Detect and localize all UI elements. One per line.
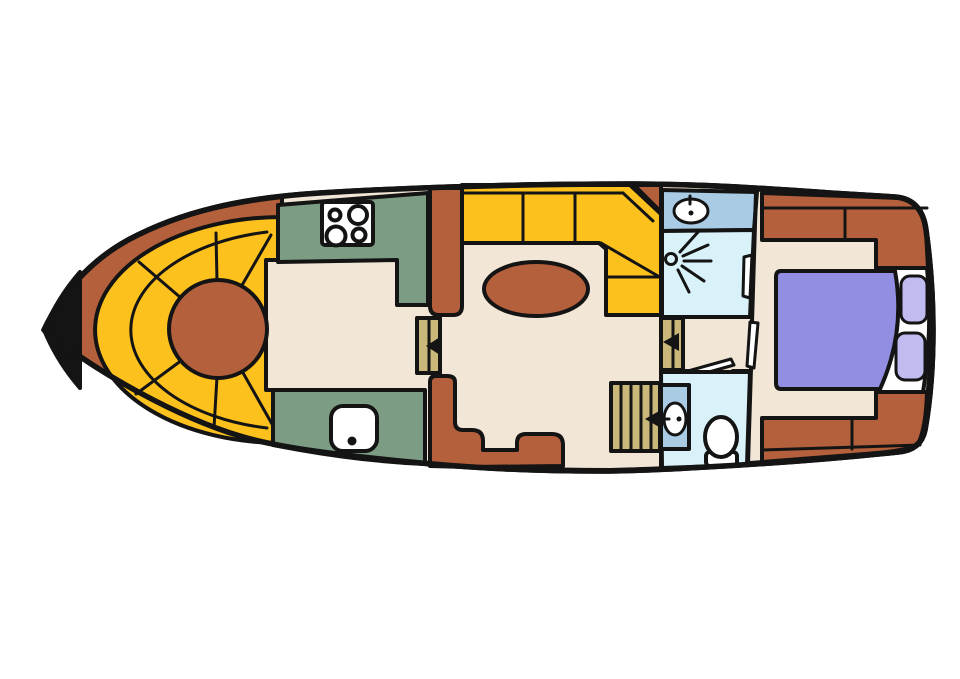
dinette-table — [484, 262, 588, 316]
stove-icon — [322, 202, 373, 246]
shower-room — [662, 230, 754, 317]
shower-door-leaf — [743, 255, 752, 298]
boat-floor-plan — [0, 0, 960, 679]
galley-sink-icon — [331, 406, 377, 451]
salon-entry-door — [417, 318, 440, 373]
galley-cabinet — [430, 188, 462, 315]
bed — [776, 271, 898, 389]
floor-plan-canvas — [0, 0, 960, 679]
pillow — [901, 276, 927, 323]
toilet-icon — [705, 417, 737, 466]
bow-tip — [44, 272, 80, 388]
bow-table — [169, 280, 267, 378]
pillow — [896, 333, 925, 380]
stairs-icon — [611, 383, 661, 451]
corridor-door — [661, 318, 683, 370]
